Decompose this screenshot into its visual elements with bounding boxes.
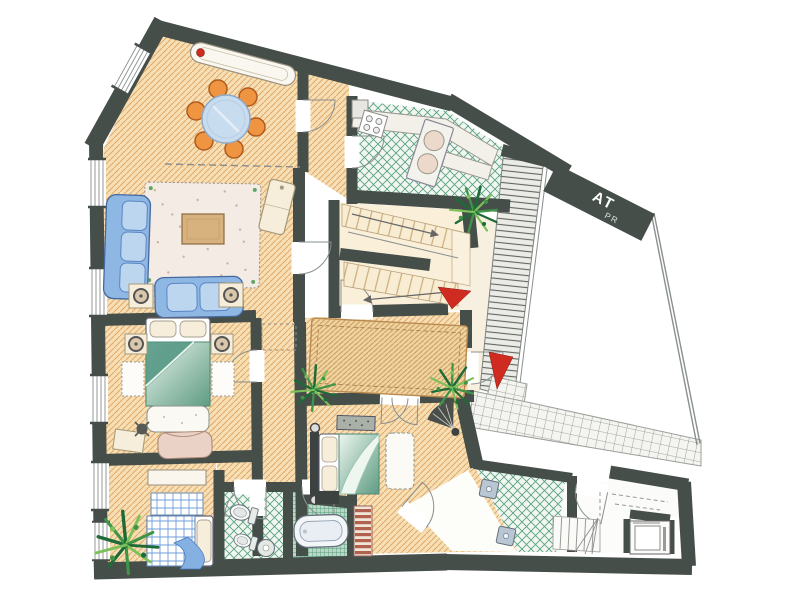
armchair [158,431,213,459]
bedside-rug [386,433,414,489]
elevator [630,521,670,554]
roof-outline [652,213,700,445]
coffee-table [182,214,224,244]
bathtub [293,514,348,548]
side-table-left [129,284,153,308]
vestibule-floor [306,70,349,200]
lamp-icon [215,337,229,351]
lamp-icon [129,337,143,351]
sink-icon [479,479,499,499]
terrace [469,376,701,466]
floor-plan-drawing: AT PR [0,0,800,600]
lamp-icon [224,288,238,302]
bedside-rug-left [122,362,144,396]
floor-plan-canvas: AT PR [0,0,800,600]
lamp-icon [134,289,148,303]
round-sink [258,540,275,557]
studio-banner: AT PR [543,164,655,241]
dresser [337,415,375,430]
dresser [148,470,206,485]
single-bed [147,516,213,569]
foot-bench [315,491,339,504]
bedside-rug-right [212,362,234,396]
double-bed [146,318,210,406]
desk-chair [135,422,149,436]
stair-landing [452,230,470,286]
checked-bench [151,493,203,515]
radiator [354,506,372,556]
sink-icon [496,526,516,546]
window-icon [88,159,106,207]
bed-bench [147,406,209,432]
nightstand-left [125,334,147,354]
door-icon [292,242,332,274]
bathroom-2 [293,514,348,548]
window-icon [90,375,108,423]
window-icon [91,462,109,510]
side-table-right [219,283,243,307]
nightstand-right [211,334,233,354]
